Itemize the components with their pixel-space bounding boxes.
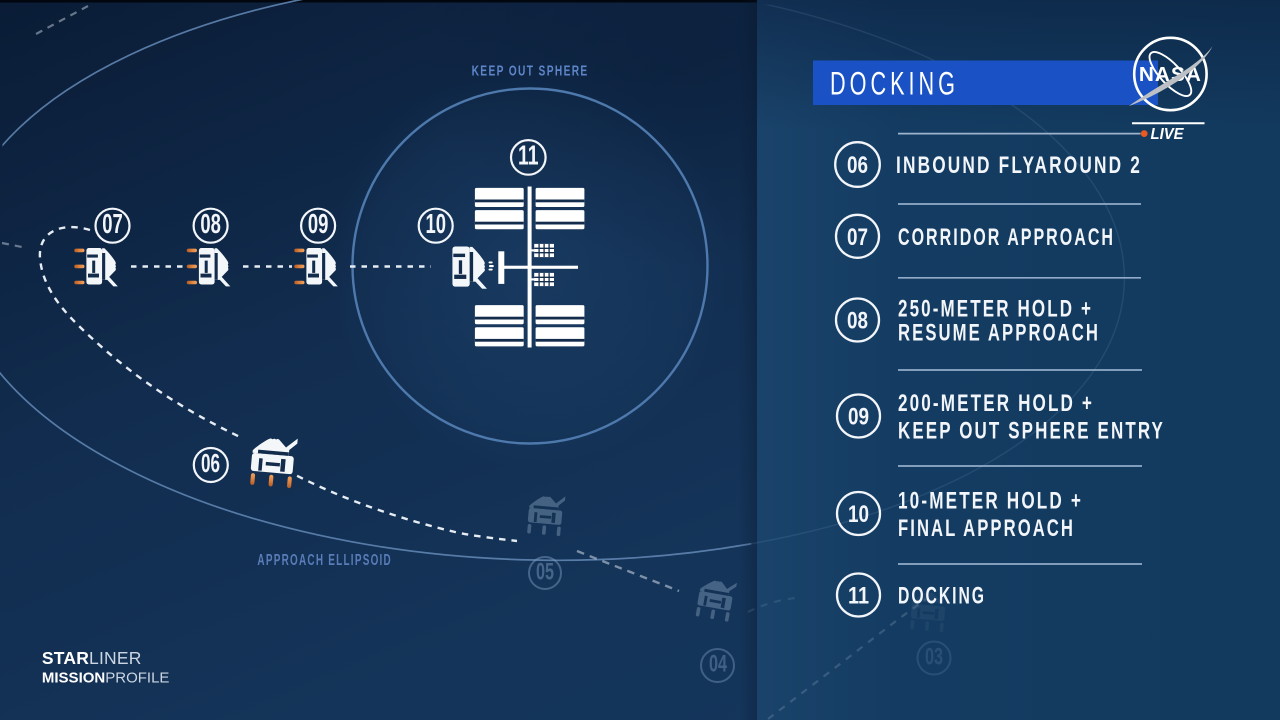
svg-text:INBOUND FLYAROUND 2: INBOUND FLYAROUND 2 bbox=[896, 152, 1142, 179]
svg-text:250-METER HOLD +: 250-METER HOLD + bbox=[898, 296, 1093, 323]
svg-text:05: 05 bbox=[536, 558, 554, 585]
svg-text:08: 08 bbox=[847, 308, 868, 335]
svg-text:LIVE: LIVE bbox=[1151, 126, 1185, 143]
svg-text:DOCKING: DOCKING bbox=[830, 66, 959, 102]
svg-text:FINAL APPROACH: FINAL APPROACH bbox=[898, 515, 1075, 542]
svg-text:03: 03 bbox=[925, 644, 943, 671]
svg-text:10: 10 bbox=[848, 501, 869, 528]
svg-text:10: 10 bbox=[425, 208, 446, 239]
svg-text:STARLINER: STARLINER bbox=[42, 648, 142, 668]
svg-text:KEEP OUT SPHERE: KEEP OUT SPHERE bbox=[472, 63, 589, 80]
svg-text:08: 08 bbox=[200, 208, 221, 239]
svg-text:DOCKING: DOCKING bbox=[898, 583, 986, 610]
svg-text:09: 09 bbox=[848, 404, 869, 431]
svg-text:200-METER HOLD +: 200-METER HOLD + bbox=[898, 390, 1094, 417]
svg-text:07: 07 bbox=[102, 208, 123, 239]
svg-text:RESUME APPROACH: RESUME APPROACH bbox=[898, 320, 1100, 347]
svg-text:04: 04 bbox=[709, 650, 727, 677]
svg-text:MISSIONPROFILE: MISSIONPROFILE bbox=[42, 670, 170, 687]
svg-text:KEEP OUT SPHERE ENTRY: KEEP OUT SPHERE ENTRY bbox=[898, 418, 1165, 445]
svg-text:07: 07 bbox=[847, 224, 868, 251]
svg-text:06: 06 bbox=[847, 152, 868, 179]
svg-text:09: 09 bbox=[308, 208, 329, 239]
svg-text:CORRIDOR APPROACH: CORRIDOR APPROACH bbox=[898, 224, 1115, 251]
svg-text:10-METER HOLD +: 10-METER HOLD + bbox=[898, 488, 1083, 515]
svg-text:11: 11 bbox=[518, 140, 539, 171]
svg-text:APPROACH ELLIPSOID: APPROACH ELLIPSOID bbox=[257, 552, 392, 569]
svg-text:06: 06 bbox=[201, 448, 220, 478]
svg-text:11: 11 bbox=[848, 583, 869, 610]
